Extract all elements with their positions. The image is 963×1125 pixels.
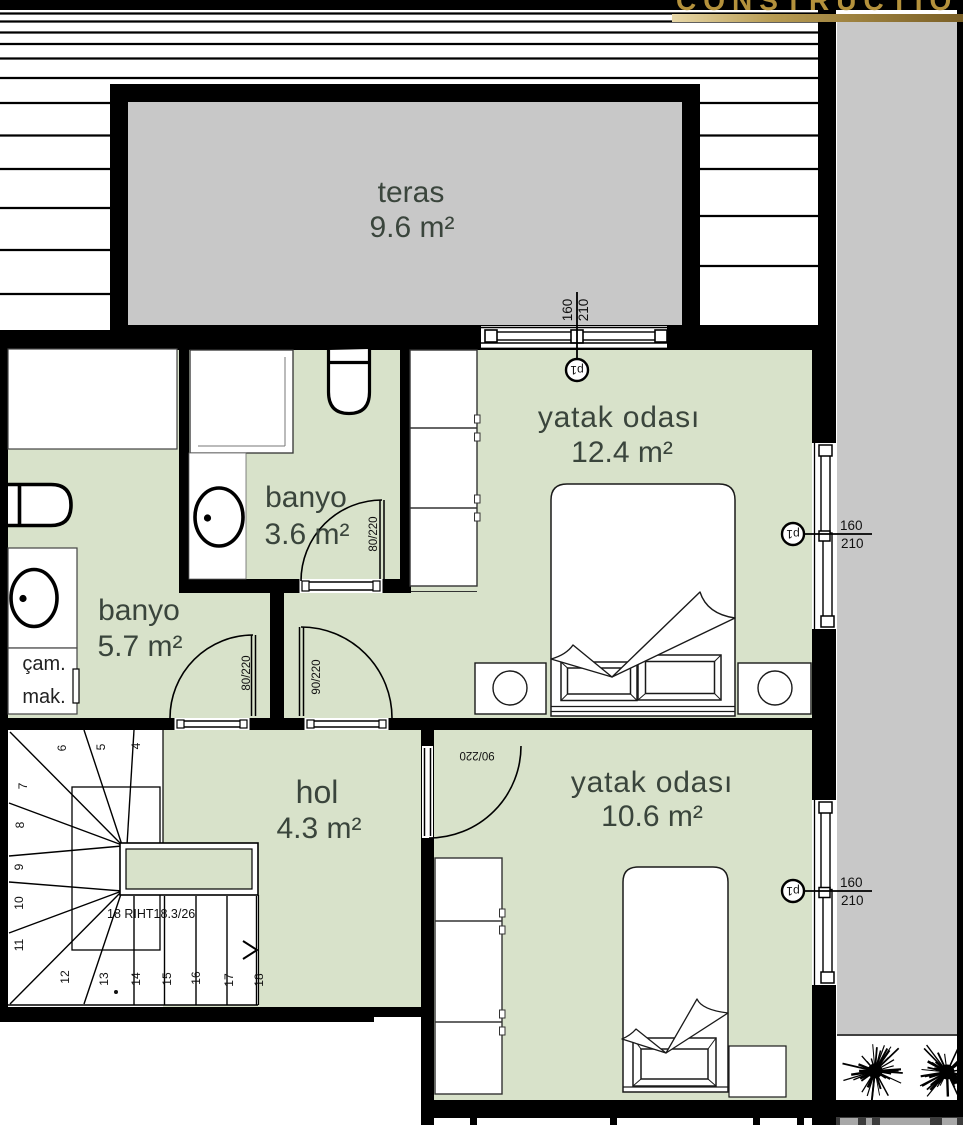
svg-text:yatak odası: yatak odası (538, 401, 700, 434)
svg-text:yatak odası: yatak odası (571, 766, 733, 799)
svg-text:18 RIHT18.3/26: 18 RIHT18.3/26 (107, 907, 195, 921)
svg-text:15: 15 (160, 972, 174, 986)
svg-text:teras: teras (378, 176, 445, 209)
svg-text:160: 160 (840, 518, 863, 533)
svg-text:8: 8 (13, 821, 27, 828)
svg-text:4.3 m²: 4.3 m² (276, 812, 361, 845)
svg-text:4: 4 (129, 742, 143, 749)
svg-text:mak.: mak. (22, 686, 65, 708)
svg-text:16: 16 (189, 971, 203, 985)
svg-text:80/220: 80/220 (368, 516, 380, 551)
svg-text:160: 160 (840, 875, 863, 890)
svg-text:10.6 m²: 10.6 m² (601, 800, 703, 833)
svg-text:13: 13 (97, 972, 111, 986)
svg-text:17: 17 (222, 973, 236, 987)
svg-text:210: 210 (841, 536, 864, 551)
svg-text:9.6 m²: 9.6 m² (369, 211, 454, 244)
svg-text:14: 14 (129, 972, 143, 986)
svg-text:160: 160 (560, 299, 575, 322)
svg-text:7: 7 (16, 782, 30, 789)
svg-text:5.7 m²: 5.7 m² (97, 630, 182, 663)
svg-text:11: 11 (12, 938, 26, 951)
svg-text:80/220: 80/220 (241, 655, 253, 690)
svg-text:3.6 m²: 3.6 m² (264, 518, 349, 551)
svg-text:p1: p1 (570, 363, 584, 377)
svg-text:banyo: banyo (98, 594, 180, 627)
svg-text:hol: hol (296, 774, 339, 810)
svg-text:10: 10 (12, 896, 26, 910)
svg-text:12: 12 (58, 970, 72, 984)
svg-text:18: 18 (252, 973, 266, 987)
svg-text:210: 210 (841, 893, 864, 908)
svg-text:12.4 m²: 12.4 m² (571, 436, 673, 469)
svg-text:banyo: banyo (265, 481, 347, 514)
svg-text:9: 9 (12, 863, 26, 870)
svg-text:90/220: 90/220 (311, 659, 323, 694)
svg-text:5: 5 (94, 743, 108, 750)
svg-text:210: 210 (576, 299, 591, 322)
svg-text:6: 6 (55, 744, 69, 751)
svg-text:p1: p1 (786, 884, 800, 898)
svg-text:p1: p1 (786, 527, 800, 541)
svg-text:90/220: 90/220 (459, 749, 494, 761)
svg-text:çam.: çam. (22, 653, 65, 675)
